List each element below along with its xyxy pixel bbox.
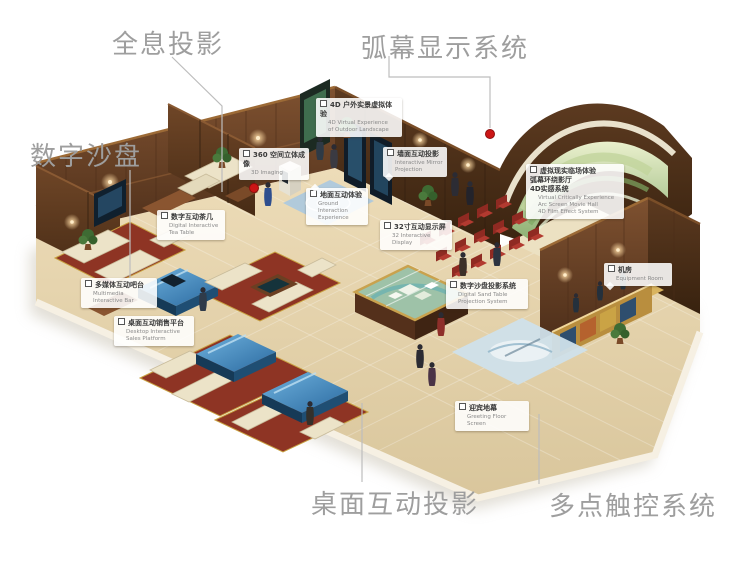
callout-ground-interaction: 地面互动体验 Ground Interaction Experience [306,188,368,225]
checkbox-icon [320,100,327,107]
callout-title: 数字互动茶几 [161,212,222,222]
checkbox-icon [530,166,537,173]
callout-equipment-room: 机房 Equipment Room [604,263,672,286]
callout-title: 迎宾地幕 [459,403,526,413]
callout-32-inch-display: 32寸互动显示屏 32 Interactive Display [380,220,452,250]
callout-4d-cinema-system: 虚拟现实临场体验 弧幕环绕影厅 4D实感系统 Virtual Criticall… [526,164,624,219]
callout-360-imaging: 360 空间立体成像 3D Imaging [239,148,309,180]
callout-title: 32寸互动显示屏 [384,222,449,232]
red-hotspot-dot [250,184,259,193]
red-hotspot-dot [486,130,495,139]
callout-subtitle: 3D Imaging [251,170,306,177]
callout-title: 多媒体互动吧台 [85,280,154,290]
checkbox-icon [161,212,168,219]
callout-subtitle: Digital Sand Table Projection System [458,292,525,306]
callout-title: 4D 户外实景虚拟体验 [320,100,399,119]
callout-title: 墙面互动投影 [387,149,444,159]
checkbox-icon [118,318,125,325]
callout-title: 数字沙盘投影系统 [450,281,525,291]
callout-title: 地面互动体验 [310,190,365,200]
checkbox-icon [608,265,615,272]
callout-sand-table-projection: 数字沙盘投影系统 Digital Sand Table Projection S… [446,279,528,309]
callout-multimedia-bar: 多媒体互动吧台 Multimedia Interactive Bar [81,278,157,308]
main-label-desktop-interactive-projection: 桌面互动投影 [311,484,479,521]
annotated-exhibition-hall: 全息投影 弧幕显示系统 数字沙盘 桌面互动投影 多点触控系统 4D 户外实景虚拟… [0,0,741,563]
callout-subtitle: Greeting Floor Screen [467,414,526,428]
callout-title: 机房 [608,265,669,275]
callout-subtitle: 32 Interactive Display [392,233,449,247]
main-label-multi-touch-system: 多点触控系统 [549,486,717,523]
checkbox-icon [243,150,250,157]
main-label-arc-screen-display: 弧幕显示系统 [361,28,529,65]
callout-subtitle: Digital Interactive Tea Table [169,223,222,237]
callout-digital-tea-table: 数字互动茶几 Digital Interactive Tea Table [157,210,225,240]
callout-subtitle: Equipment Room [616,276,669,283]
callout-desktop-sales-platform: 桌面互动销售平台 Desktop Interactive Sales Platf… [114,316,194,346]
main-label-holographic-projection: 全息投影 [112,24,224,61]
checkbox-icon [459,403,466,410]
main-label-digital-sand-table: 数字沙盘 [30,136,142,173]
callout-subtitle: Virtual Critically Experience Arc Screen… [538,195,621,216]
checkbox-icon [85,280,92,287]
callout-4d-outdoor-experience: 4D 户外实景虚拟体验 4D Virtual Experience of Out… [316,98,402,137]
callout-title: 虚拟现实临场体验 弧幕环绕影厅 4D实感系统 [530,166,621,194]
checkbox-icon [450,281,457,288]
callout-subtitle: Multimedia Interactive Bar [93,291,154,305]
checkbox-icon [310,190,317,197]
callout-subtitle: Ground Interaction Experience [318,201,365,222]
checkbox-icon [387,149,394,156]
callout-wall-interactive-projection: 墙面互动投影 Interactive Mirror Projection [383,147,447,177]
callout-subtitle: Interactive Mirror Projection [395,160,444,174]
callout-title: 360 空间立体成像 [243,150,306,169]
checkbox-icon [384,222,391,229]
callout-subtitle: Desktop Interactive Sales Platform [126,329,191,343]
callout-title: 桌面互动销售平台 [118,318,191,328]
callout-greeting-floor-screen: 迎宾地幕 Greeting Floor Screen [455,401,529,431]
callout-subtitle: 4D Virtual Experience of Outdoor Landsca… [328,120,399,134]
